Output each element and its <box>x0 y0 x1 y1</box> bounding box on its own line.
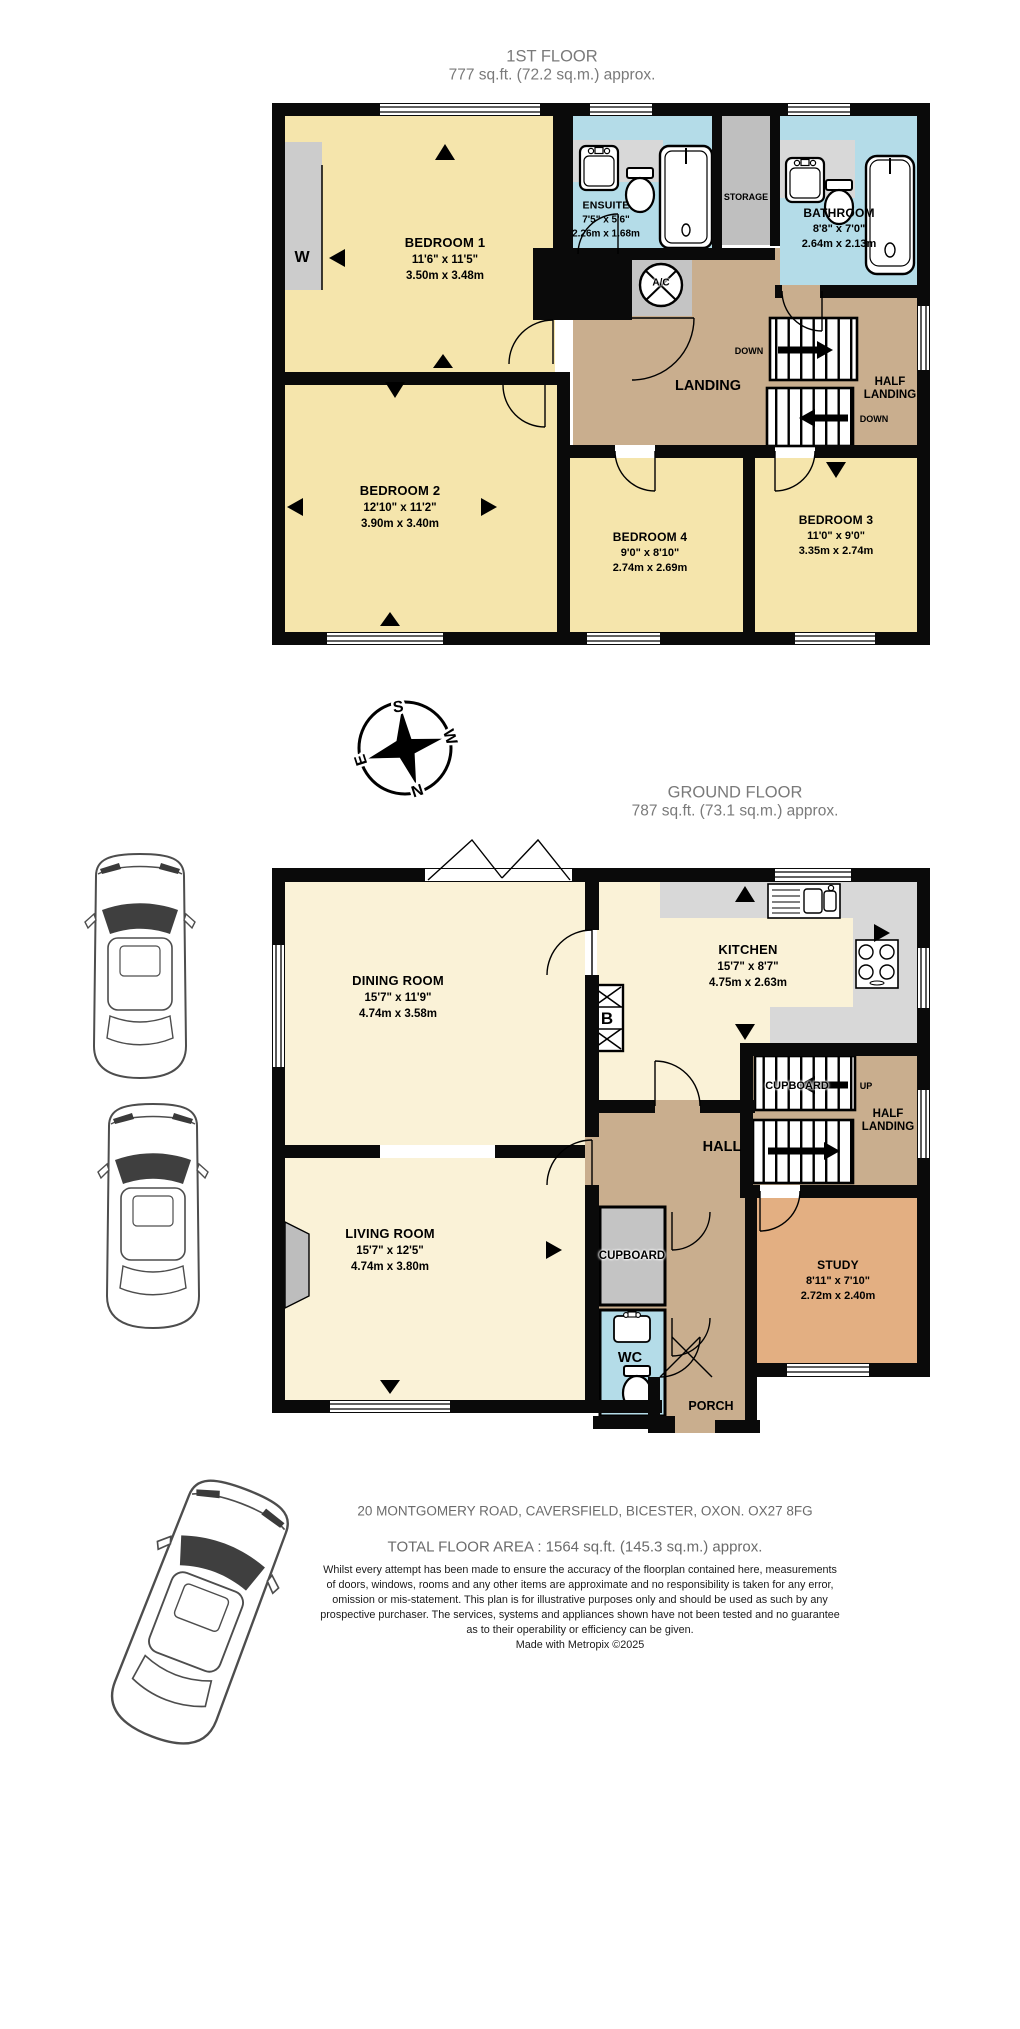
dining-room-label: DINING ROOM 15'7" x 11'9" 4.74m x 3.58m <box>352 972 444 1022</box>
compass-star <box>369 710 442 784</box>
car-3 <box>91 1467 307 1760</box>
disclaimer-line: as to their operability or efficiency ca… <box>466 1624 693 1636</box>
car-1 <box>85 854 195 1078</box>
bedroom2-label: BEDROOM 2 12'10" x 11'2" 3.90m x 3.40m <box>360 482 441 532</box>
down-label-lower: DOWN <box>860 414 889 424</box>
compass-north: N <box>409 780 425 800</box>
bathroom-label: BATHROOM 8'8" x 7'0" 2.64m x 2.13m <box>802 205 877 253</box>
bedroom1-label: BEDROOM 1 11'6" x 11'5" 3.50m x 3.48m <box>405 234 486 284</box>
porch-label: PORCH <box>688 1399 733 1413</box>
address: 20 MONTGOMERY ROAD, CAVERSFIELD, BICESTE… <box>357 1504 812 1519</box>
storage-label: STORAGE <box>724 192 768 202</box>
bedroom3-label: BEDROOM 3 11'0" x 9'0" 3.35m x 2.74m <box>799 512 874 560</box>
chimney-void <box>533 248 632 320</box>
bedroom4-label: BEDROOM 4 9'0" x 8'10" 2.74m x 2.69m <box>613 529 688 577</box>
half-landing-label-first: HALF LANDING <box>853 376 927 402</box>
metropix-credit: Made with Metropix ©2025 <box>516 1639 645 1651</box>
boiler-label: B <box>601 1009 613 1029</box>
compass-west: W <box>439 727 460 747</box>
ensuite-shower-bath <box>660 146 712 248</box>
floorplan-canvas: S W N E <box>0 0 1020 2029</box>
first-floor-plan <box>272 103 930 645</box>
wardrobe-label: W <box>294 249 309 267</box>
wardrobe-area <box>285 142 322 290</box>
living-floor <box>285 1158 585 1400</box>
cupboard-label: CUPBOARD <box>599 1250 665 1262</box>
kitchen-sink-icon <box>768 884 840 918</box>
kitchen-label: KITCHEN 15'7" x 8'7" 4.75m x 2.63m <box>709 941 787 991</box>
disclaimer-line: prospective purchaser. The services, sys… <box>320 1609 840 1621</box>
down-label-upper: DOWN <box>735 346 764 356</box>
hall-label: HALL <box>703 1139 742 1155</box>
landing-label: LANDING <box>675 378 741 394</box>
first-floor-title: 1ST FLOOR 777 sq.ft. (72.2 sq.m.) approx… <box>449 48 656 85</box>
storage-floor <box>722 116 770 245</box>
car-2 <box>98 1104 208 1328</box>
disclaimer-line: of doors, windows, rooms and any other i… <box>326 1579 833 1591</box>
ensuite-label: ENSUITE 7'5" x 5'6" 2.26m x 1.68m <box>572 199 640 242</box>
ac-label: A/C <box>652 278 669 289</box>
up-label: UP <box>860 1081 873 1091</box>
compass-east: E <box>352 752 372 768</box>
total-floor-area: TOTAL FLOOR AREA : 1564 sq.ft. (145.3 sq… <box>388 1539 763 1556</box>
half-landing-label-ground: HALF LANDING <box>851 1108 925 1134</box>
understairs-cupboard-label: CUPBOARD <box>765 1080 829 1092</box>
chimney-breast <box>285 1222 309 1308</box>
wc-label: WC <box>618 1350 642 1366</box>
disclaimer-line: Whilst every attempt has been made to en… <box>323 1564 837 1576</box>
hob-icon <box>856 940 898 988</box>
living-room-label: LIVING ROOM 15'7" x 12'5" 4.74m x 3.80m <box>345 1225 435 1275</box>
study-label: STUDY 8'11" x 7'10" 2.72m x 2.40m <box>801 1257 876 1305</box>
wc-sink-icon <box>614 1312 650 1342</box>
ground-floor-title: GROUND FLOOR 787 sq.ft. (73.1 sq.m.) app… <box>632 784 839 821</box>
ground-floor-plan <box>272 840 930 1433</box>
compass-south: S <box>392 698 405 716</box>
disclaimer-line: omission or mis-statement. This plan is … <box>332 1594 828 1606</box>
compass: S W N E <box>352 698 461 799</box>
kitchen-counter-return <box>770 1007 853 1045</box>
